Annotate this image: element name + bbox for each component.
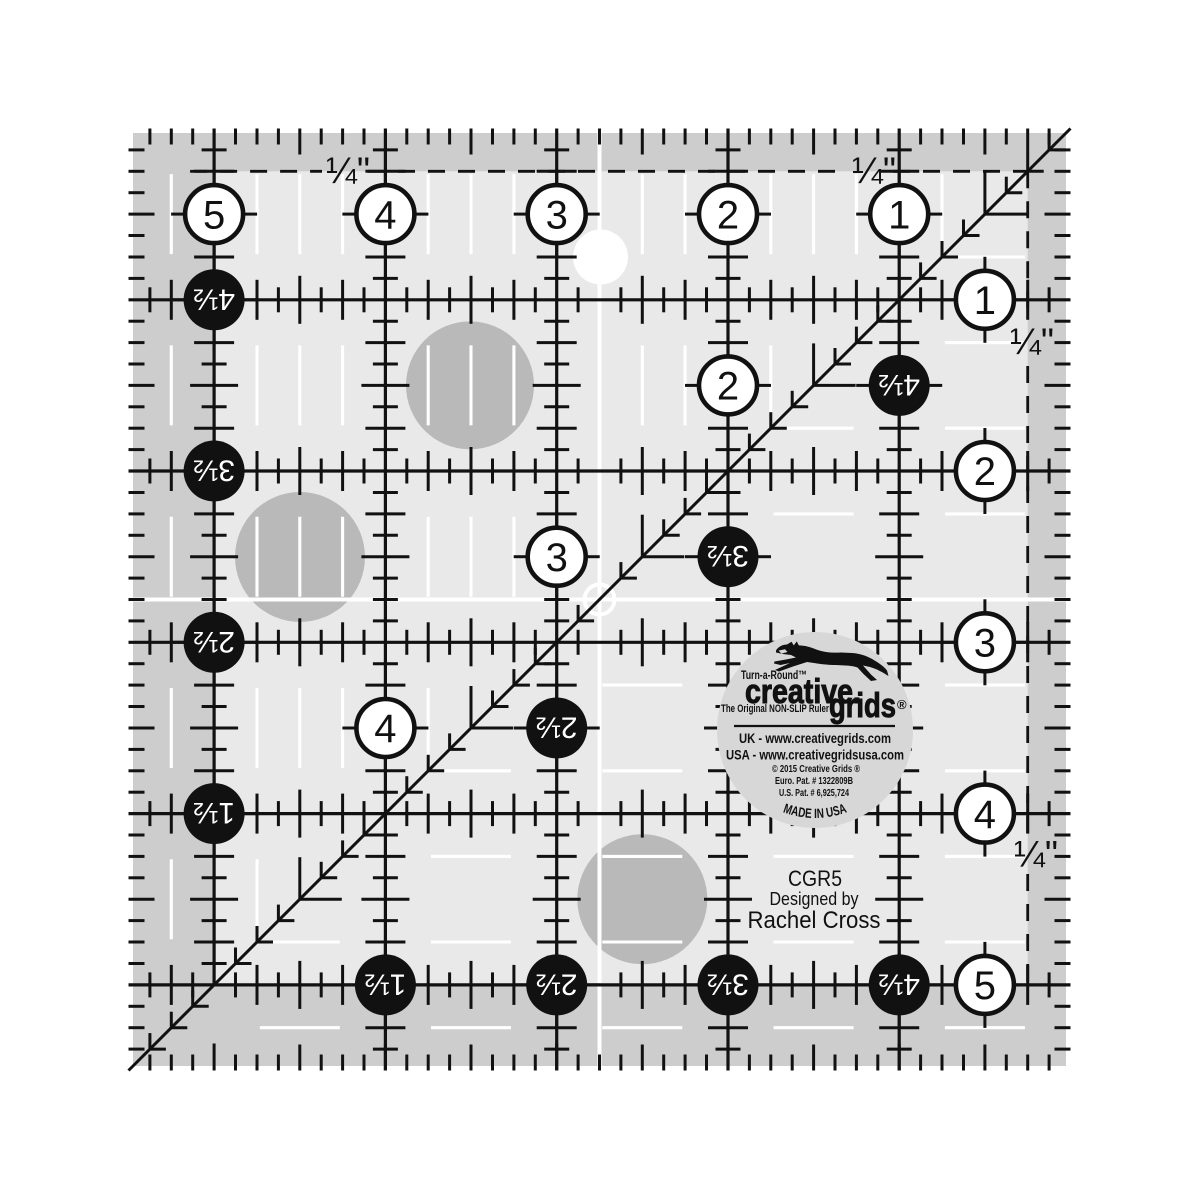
svg-text:4½: 4½	[193, 282, 235, 315]
svg-text:grids: grids	[829, 687, 896, 725]
svg-text:4½: 4½	[878, 967, 920, 1000]
svg-text:3: 3	[546, 193, 568, 237]
svg-text:2: 2	[717, 365, 739, 409]
svg-text:2: 2	[717, 193, 739, 237]
svg-text:¼": ¼"	[326, 150, 370, 191]
svg-text:®: ®	[897, 697, 907, 712]
svg-text:3½: 3½	[193, 454, 235, 487]
svg-text:CGR5: CGR5	[788, 866, 842, 891]
svg-text:4½: 4½	[878, 368, 920, 401]
svg-text:1½: 1½	[365, 967, 407, 1000]
svg-text:2: 2	[974, 450, 996, 494]
svg-text:4: 4	[974, 793, 996, 837]
svg-text:3: 3	[546, 536, 568, 580]
svg-text:Rachel Cross: Rachel Cross	[748, 907, 881, 934]
svg-text:2½: 2½	[536, 711, 578, 744]
svg-text:¼": ¼"	[1010, 321, 1054, 362]
svg-text:5: 5	[974, 964, 996, 1008]
svg-text:2½: 2½	[536, 967, 578, 1000]
svg-text:1: 1	[888, 193, 910, 237]
svg-text:4: 4	[374, 707, 396, 751]
svg-text:1½: 1½	[193, 796, 235, 829]
svg-text:3½: 3½	[707, 539, 749, 572]
svg-text:3½: 3½	[707, 967, 749, 1000]
svg-text:U.S. Pat. # 6,925,724: U.S. Pat. # 6,925,724	[779, 788, 849, 799]
svg-text:© 2015 Creative Grids ®: © 2015 Creative Grids ®	[772, 764, 860, 775]
svg-text:Designed by: Designed by	[770, 889, 859, 909]
svg-text:3: 3	[974, 622, 996, 666]
svg-text:1: 1	[974, 279, 996, 323]
svg-text:¼": ¼"	[1014, 834, 1058, 875]
svg-text:UK - www.creativegrids.com: UK - www.creativegrids.com	[739, 730, 891, 746]
svg-text:The Original NON-SLIP Ruler: The Original NON-SLIP Ruler	[721, 703, 830, 715]
svg-text:4: 4	[374, 193, 396, 237]
svg-text:USA - www.creativegridsusa.com: USA - www.creativegridsusa.com	[726, 747, 904, 763]
svg-text:2½: 2½	[193, 625, 235, 658]
svg-text:5: 5	[203, 193, 225, 237]
svg-text:Euro. Pat. # 1322809B: Euro. Pat. # 1322809B	[775, 776, 853, 787]
